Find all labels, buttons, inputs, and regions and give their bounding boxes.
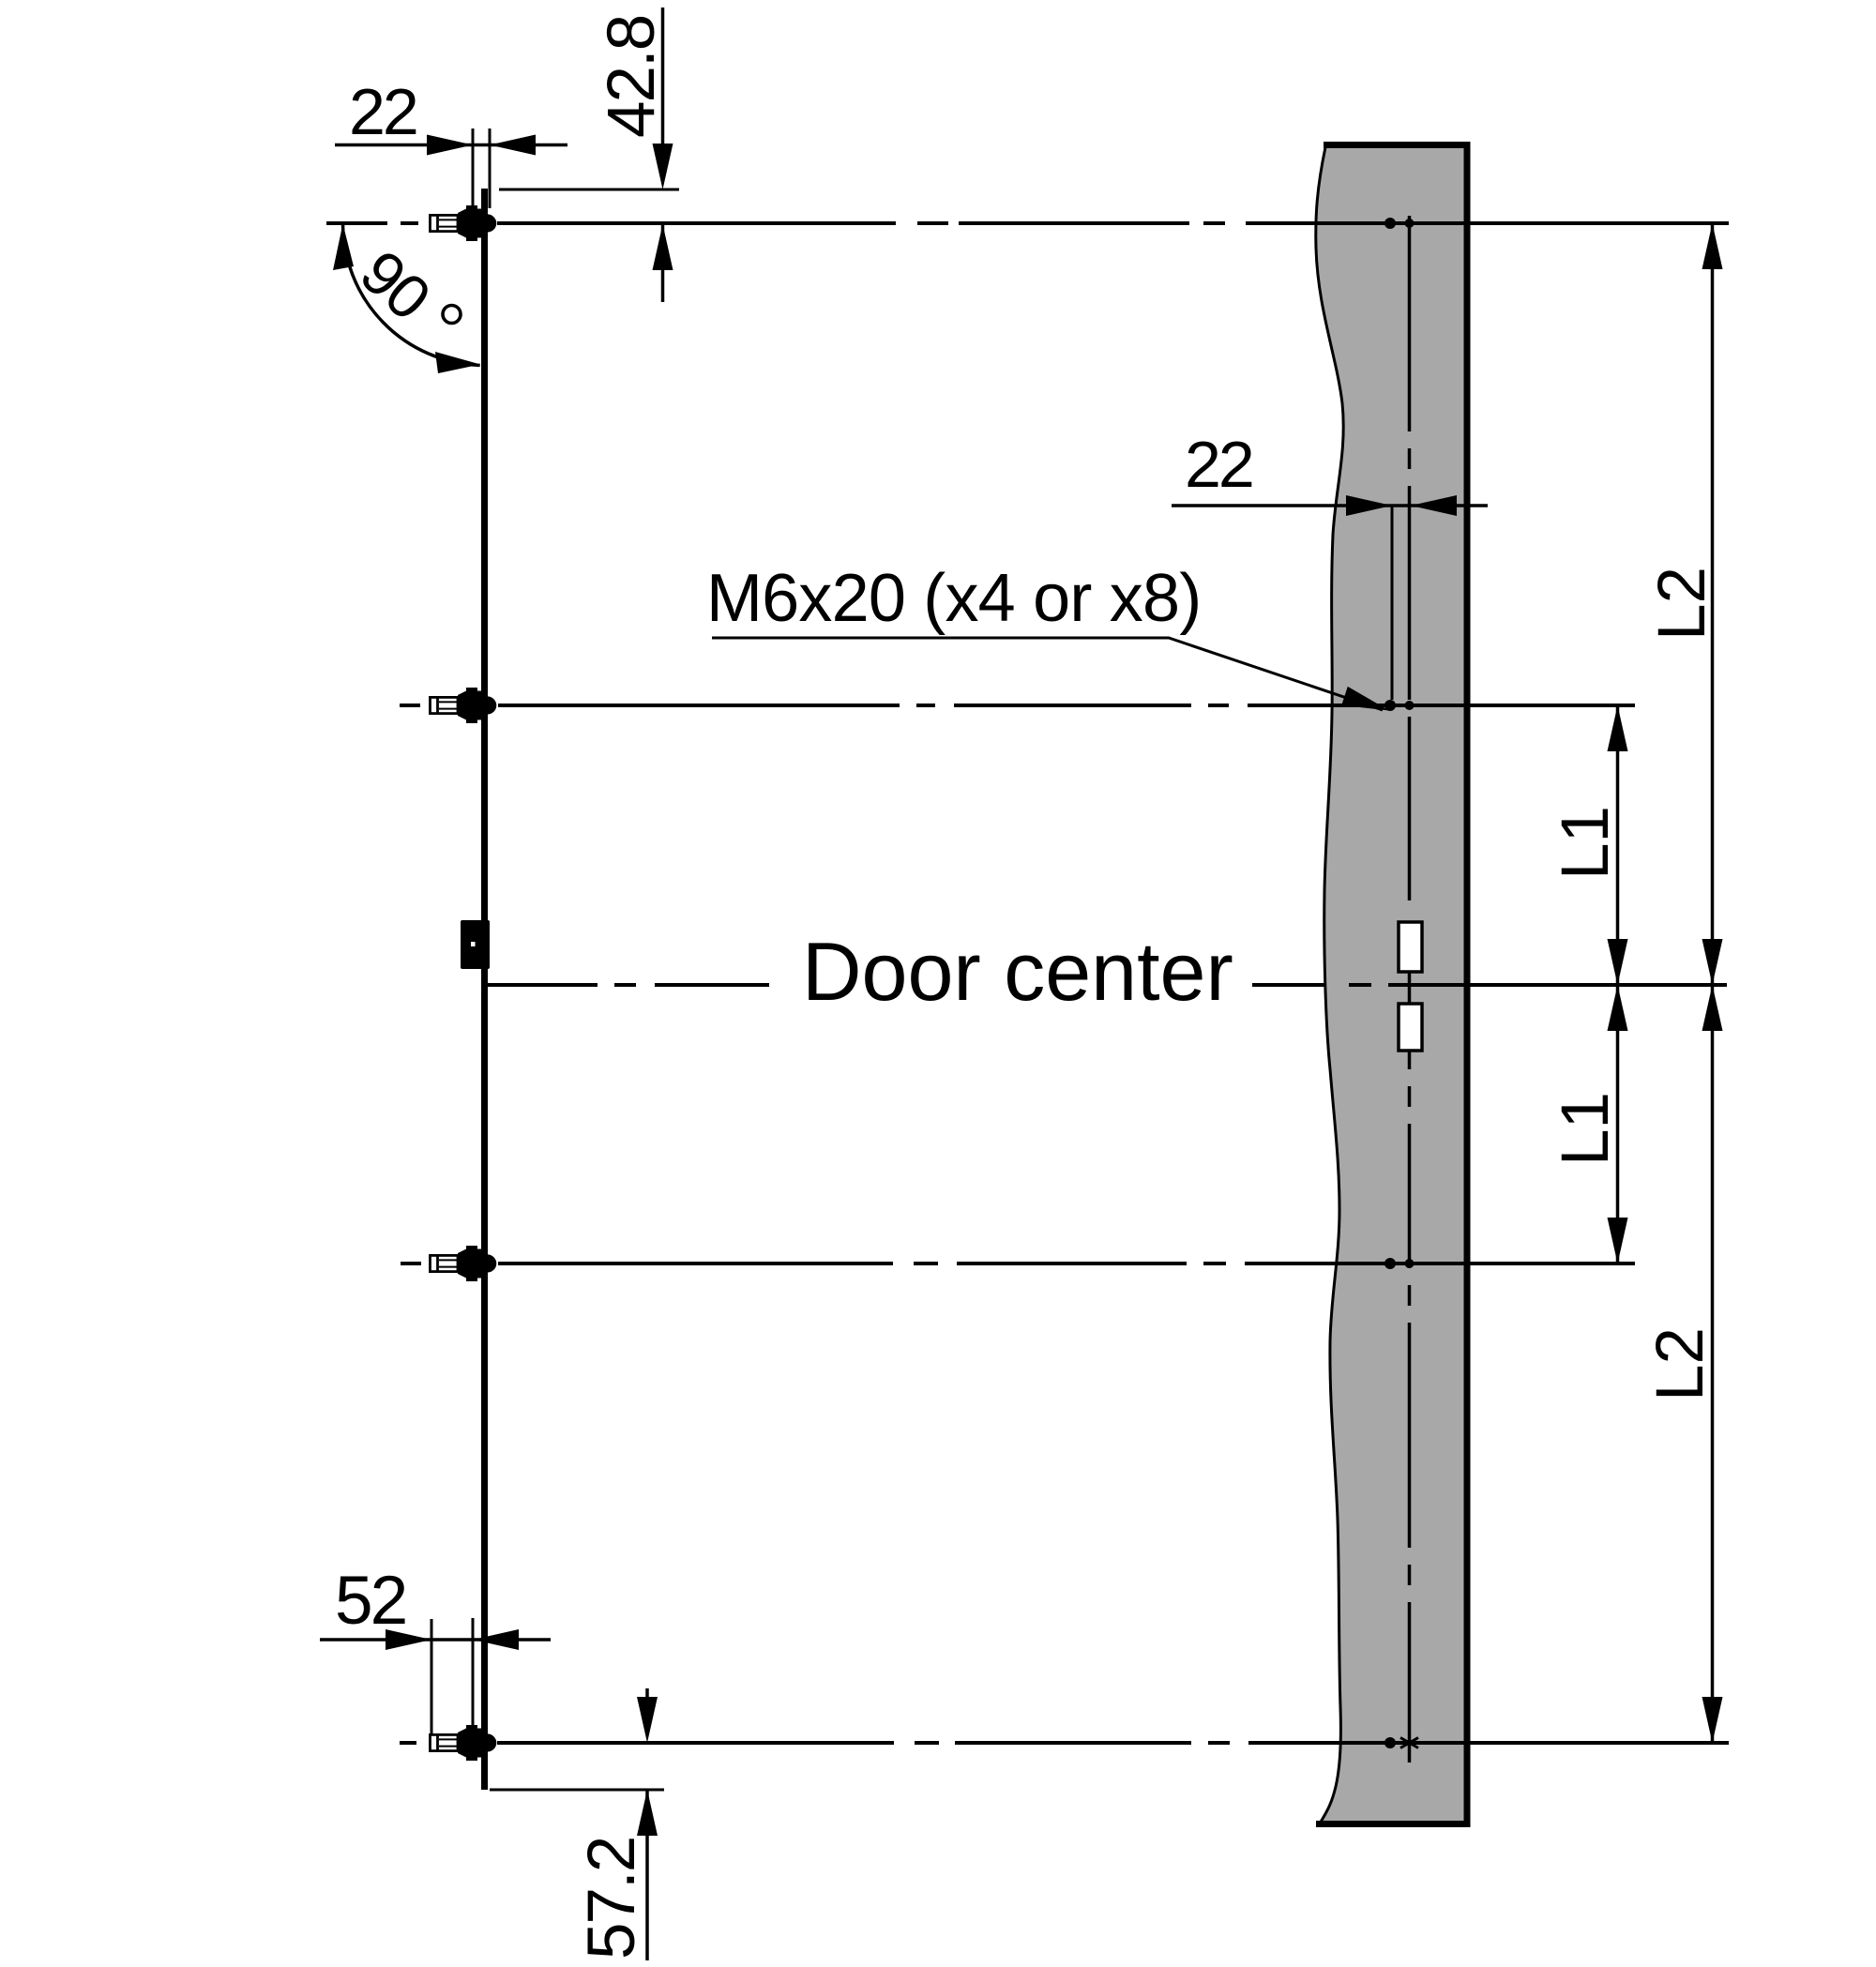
svg-text:L2: L2 (1643, 1327, 1717, 1401)
svg-text:22: 22 (1185, 428, 1252, 501)
svg-text:L1: L1 (1549, 1092, 1623, 1166)
svg-text:Door center: Door center (802, 925, 1233, 1018)
svg-text:42.8: 42.8 (595, 16, 669, 138)
svg-text:L2: L2 (1645, 567, 1719, 641)
svg-text:22: 22 (349, 75, 416, 148)
svg-text:52: 52 (335, 1563, 405, 1639)
svg-text:57.2: 57.2 (575, 1838, 649, 1959)
svg-text:M6x20 (x4 or x8): M6x20 (x4 or x8) (706, 561, 1201, 636)
svg-text:L1: L1 (1549, 806, 1623, 880)
